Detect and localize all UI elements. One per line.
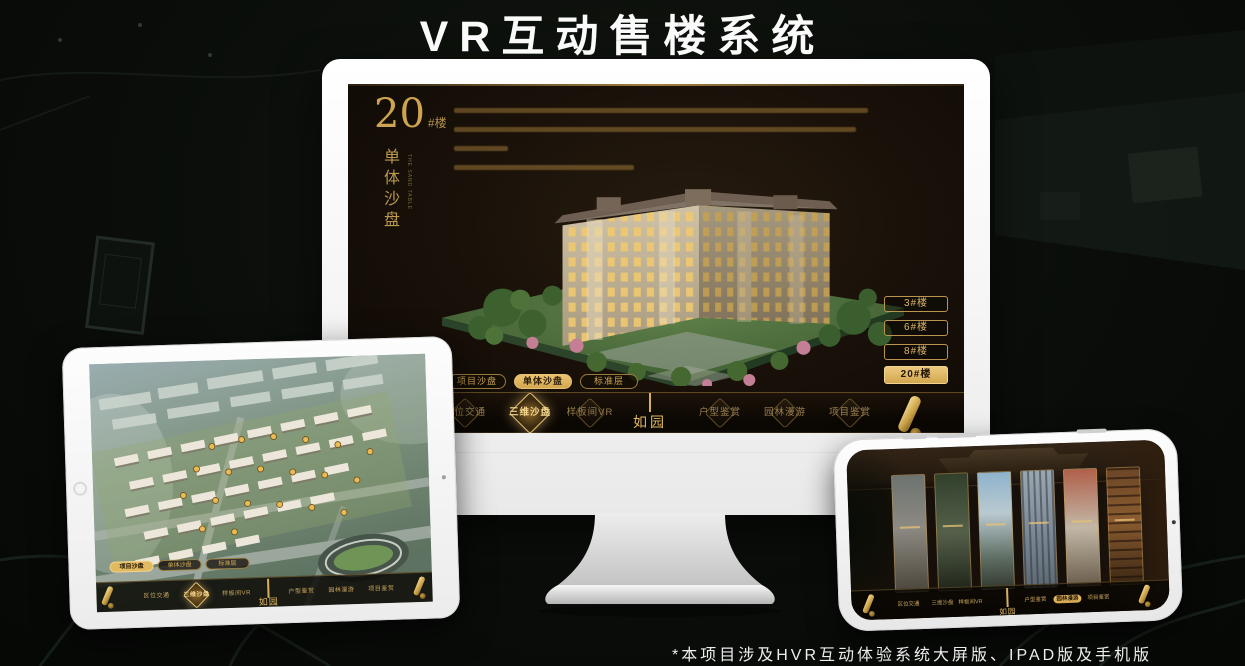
ruyuan-seal-icon xyxy=(649,393,651,412)
phone-nav-model-room-vr[interactable]: 样板间VR xyxy=(952,587,989,618)
scroll-menu-icon[interactable] xyxy=(102,586,113,610)
phone-nav-project-showcase[interactable]: 项目鉴赏 xyxy=(1080,582,1117,613)
floor-button-3[interactable]: 3#楼 xyxy=(884,296,948,312)
ipad-tab-standard-floor[interactable]: 标准层 xyxy=(205,557,249,569)
scroll-menu-icon[interactable] xyxy=(863,594,874,618)
building-3d-model[interactable] xyxy=(436,148,918,386)
nav-item-project-showcase[interactable]: 项目鉴赏 xyxy=(815,394,885,432)
ipad-tab-single-building[interactable]: 单体沙盘 xyxy=(157,559,201,571)
nav-item-model-room-vr[interactable]: 样板间VR xyxy=(555,394,625,432)
tab-single-building-sandbox[interactable]: 单体沙盘 xyxy=(514,374,572,389)
ruyuan-logo[interactable]: 如园 xyxy=(620,394,680,433)
home-button xyxy=(73,481,87,495)
gallery-panel[interactable] xyxy=(1106,466,1144,585)
phone-screen: 区位交通 三维沙盘 样板间VR 如园 户型鉴赏 园林漫游 项目鉴赏 xyxy=(846,440,1170,621)
gallery-panel[interactable] xyxy=(934,472,972,591)
nav-item-floorplans[interactable]: 户型鉴赏 xyxy=(685,394,755,432)
building-headline: 20#楼 xyxy=(374,94,447,134)
ipad-device: 项目沙盘 单体沙盘 标准层 区位交通 三维沙盘 样板间VR 如园 户型鉴赏 园林… xyxy=(62,336,461,630)
ipad-tab-project-sandbox[interactable]: 项目沙盘 xyxy=(109,560,153,572)
front-camera xyxy=(442,475,446,479)
floor-button-20-active[interactable]: 20#楼 xyxy=(884,366,948,384)
tab-project-sandbox[interactable]: 项目沙盘 xyxy=(448,374,506,389)
ipad-nav-floorplans[interactable]: 户型鉴赏 xyxy=(279,576,324,607)
ipad-screen: 项目沙盘 单体沙盘 标准层 区位交通 三维沙盘 样板间VR 如园 户型鉴赏 园林… xyxy=(89,354,433,612)
headline-subtitle-en: THE SAND TABLE xyxy=(406,154,412,234)
monitor-stand xyxy=(530,513,790,617)
phone-nav-location-traffic[interactable]: 区位交通 xyxy=(890,589,927,620)
ruyuan-seal-icon xyxy=(267,579,270,598)
ruyuan-seal-icon xyxy=(1006,588,1009,607)
volume-buttons xyxy=(937,433,977,438)
ipad-nav-project-showcase[interactable]: 项目鉴赏 xyxy=(359,574,404,605)
floor-button-6[interactable]: 6#楼 xyxy=(884,320,948,336)
mute-switch xyxy=(903,435,927,440)
gallery-panel[interactable] xyxy=(891,474,929,593)
screen-top-trim xyxy=(348,84,964,86)
gallery-panel[interactable] xyxy=(1020,469,1058,588)
page-title: VR互动售楼系统 xyxy=(0,2,1245,64)
headline-subtitle: 单体沙盘 xyxy=(378,148,402,266)
building-number-suffix: #楼 xyxy=(428,116,447,130)
front-camera xyxy=(1172,520,1176,524)
poster-canvas: VR互动售楼系统 20#楼 单体沙盘 THE SAND TABLE xyxy=(0,0,1245,666)
phone-device: 区位交通 三维沙盘 样板间VR 如园 户型鉴赏 园林漫游 项目鉴赏 xyxy=(833,428,1183,632)
ipad-nav-3d-sandbox[interactable]: 三维沙盘 xyxy=(174,579,219,610)
ipad-nav-location-traffic[interactable]: 区位交通 xyxy=(134,581,179,612)
scroll-menu-icon[interactable] xyxy=(1139,584,1150,608)
tab-standard-floor[interactable]: 标准层 xyxy=(580,374,638,389)
floor-button-8[interactable]: 8#楼 xyxy=(884,344,948,360)
sandbox-subtabs: 项目沙盘 单体沙盘 标准层 xyxy=(448,374,638,389)
scroll-menu-icon[interactable] xyxy=(900,395,920,433)
gallery-panels xyxy=(891,466,1144,593)
gallery-panel[interactable] xyxy=(977,471,1015,590)
scroll-menu-icon[interactable] xyxy=(414,576,425,600)
nav-item-garden-tour[interactable]: 园林漫游 xyxy=(750,394,820,432)
footnote-text: *本项目涉及HVR互动体验系统大屏版、IPAD版及手机版 xyxy=(672,641,1152,665)
gallery-panel[interactable] xyxy=(1063,468,1101,587)
ipad-nav-garden-tour[interactable]: 园林漫游 xyxy=(319,575,364,606)
building-number: 20 xyxy=(374,91,425,137)
power-button xyxy=(1077,428,1107,433)
